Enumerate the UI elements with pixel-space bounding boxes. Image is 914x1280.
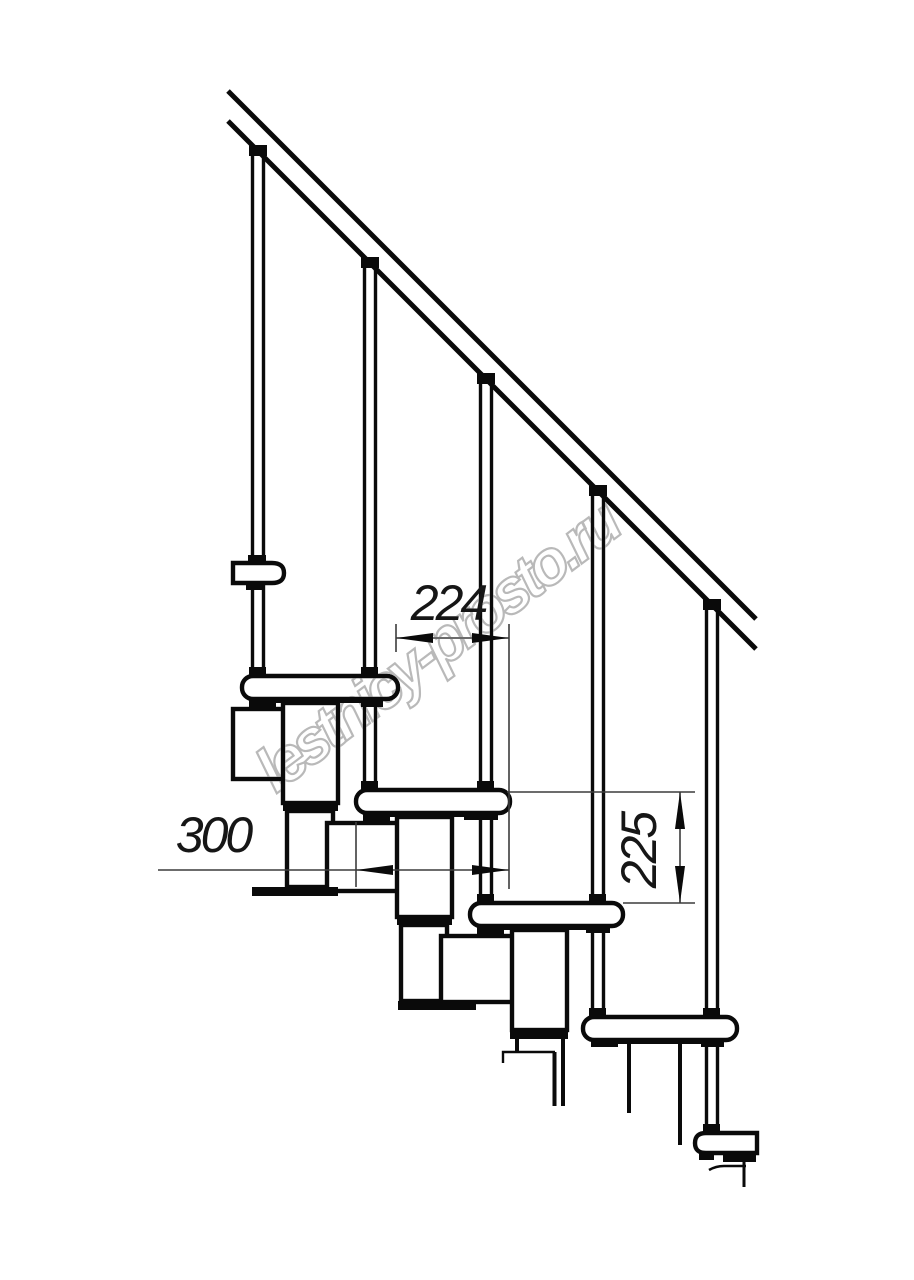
module-foot xyxy=(252,887,338,896)
tread-shadow-strip xyxy=(618,1039,701,1044)
break-line xyxy=(503,1052,555,1063)
tread-shadow-strip xyxy=(504,925,586,930)
dimension-rise-225: 225 xyxy=(507,792,695,903)
module-link-box xyxy=(441,936,516,1002)
rail-connector xyxy=(249,145,267,156)
baluster-collar xyxy=(589,1008,606,1017)
tread-lower-cut xyxy=(695,1133,757,1153)
baluster-5 xyxy=(707,610,718,1133)
baluster-collar xyxy=(249,667,266,676)
tread-tab xyxy=(477,924,504,934)
baluster-collar xyxy=(703,1124,720,1133)
baluster-4 xyxy=(593,496,604,1017)
baluster-collar xyxy=(589,894,606,903)
tread-tab xyxy=(586,924,610,933)
module-box xyxy=(512,930,567,1030)
rail-connector xyxy=(477,373,495,384)
staircase-drawing-page: 224 300 225 lestnicy-prosto.ru xyxy=(0,0,914,1280)
watermark-text: lestnicy-prosto.ru xyxy=(243,487,634,806)
tread-upper-cut xyxy=(233,563,284,583)
baluster-collar xyxy=(477,781,494,790)
tread-shadow-strip xyxy=(390,812,464,817)
tread-tab xyxy=(246,583,264,590)
arrowhead-down xyxy=(675,866,685,903)
tread xyxy=(583,1017,737,1040)
baluster-1 xyxy=(253,156,264,676)
tread-tab xyxy=(591,1038,618,1047)
dimension-value-225: 225 xyxy=(611,811,667,890)
module-foot xyxy=(398,1001,476,1010)
module-foot xyxy=(510,1030,568,1039)
rail-connector xyxy=(703,599,721,610)
baluster-collar xyxy=(703,1008,720,1017)
dimension-value-300: 300 xyxy=(176,807,254,863)
floor-mount-cut xyxy=(709,1161,746,1187)
tread-tab xyxy=(723,1152,756,1162)
tread xyxy=(470,903,623,926)
baluster-collar xyxy=(477,894,494,903)
tread-tab xyxy=(363,811,390,821)
tread-tab xyxy=(699,1152,714,1160)
baluster-collar xyxy=(361,781,378,790)
rail-connector xyxy=(361,257,379,268)
tread-tab xyxy=(464,811,498,820)
arrowhead-up xyxy=(675,792,685,829)
module-cutoff-lines xyxy=(517,1039,680,1145)
module-box xyxy=(397,817,452,917)
staircase-technical-drawing: 224 300 225 lestnicy-prosto.ru xyxy=(0,0,914,1280)
tread-tab xyxy=(701,1038,724,1047)
tread-tab xyxy=(249,697,276,707)
module-link-box xyxy=(327,823,403,891)
tread xyxy=(356,790,510,813)
baluster-collar xyxy=(248,555,266,563)
